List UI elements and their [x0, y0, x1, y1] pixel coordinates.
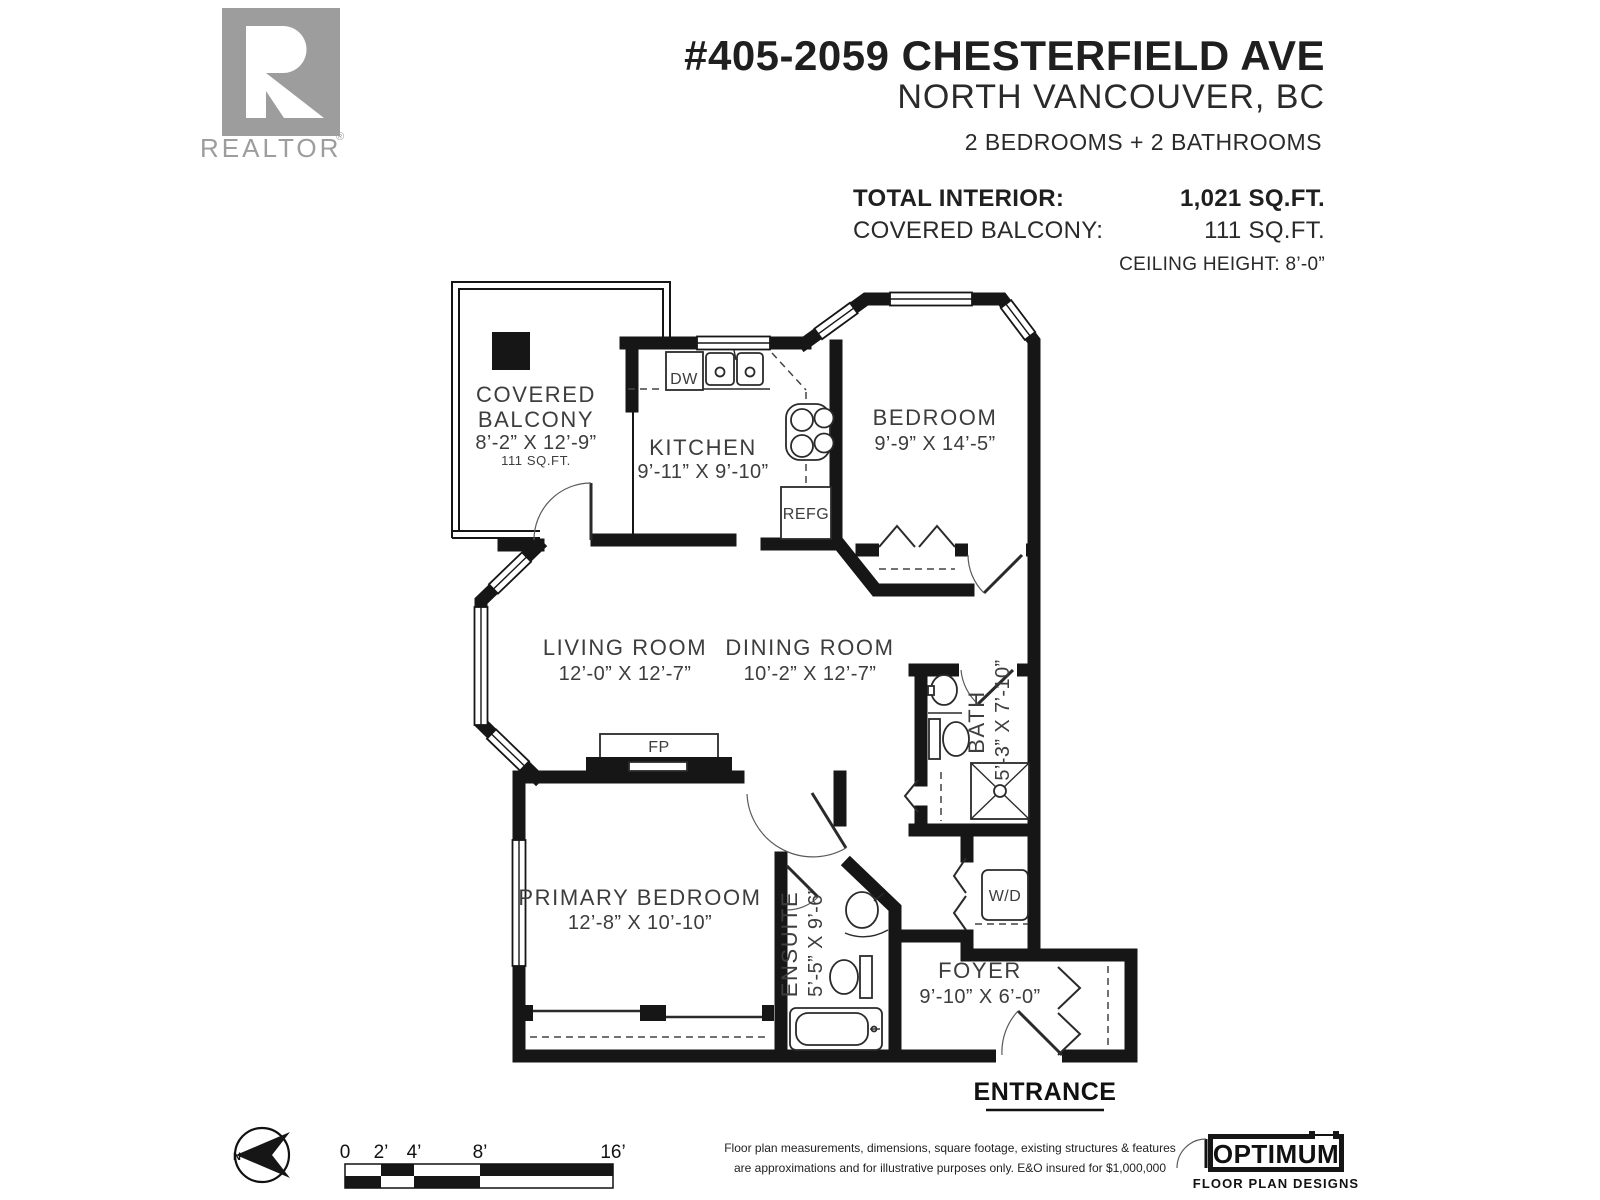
optimum-logo: OPTIMUM FLOOR PLAN DESIGNS [1177, 1131, 1359, 1191]
stat-value-total-interior: 1,021 SQ.FT. [1180, 185, 1325, 212]
disclaimer-line1: Floor plan measurements, dimensions, squ… [724, 1141, 1176, 1155]
disclaimer-line2: are approximations and for illustrative … [734, 1161, 1166, 1175]
living-room-label: LIVING ROOM [543, 635, 707, 660]
living-room-dims: 12’-0” X 12’-7” [559, 663, 692, 685]
kitchen-window [697, 337, 770, 350]
ceiling-height: CEILING HEIGHT: 8’-0” [1119, 254, 1325, 275]
bath-dims: 5’-3” X 7’-10” [992, 659, 1014, 780]
kitchen-sink [703, 350, 770, 389]
floor-plan-canvas: REALTOR ® #405-2059 CHESTERFIELD AVE NOR… [0, 0, 1600, 1200]
scale-bar: 0 2’ 4’ 8’ 16’ [340, 1142, 626, 1188]
disclaimer: Floor plan measurements, dimensions, squ… [724, 1141, 1176, 1175]
bedroom-closet-opening [879, 542, 955, 558]
stat-label-total-interior: TOTAL INTERIOR: [853, 185, 1064, 212]
bedroom-bay-window-left [814, 303, 857, 339]
entrance-callout: ENTRANCE [974, 1078, 1117, 1110]
scale-segment [381, 1164, 414, 1176]
dishwasher-label: DW [670, 371, 698, 388]
foyer-dims: 9’-10” X 6’-0” [919, 986, 1040, 1008]
scale-tick-0: 0 [340, 1142, 351, 1163]
dining-room-dims: 10’-2” X 12’-7” [744, 663, 877, 685]
header: #405-2059 CHESTERFIELD AVE NORTH VANCOUV… [684, 32, 1325, 275]
optimum-window-cap [1309, 1131, 1315, 1139]
dining-room-label: DINING ROOM [725, 635, 894, 660]
living-bay-window-upper [489, 552, 531, 593]
optimum-tagline: FLOOR PLAN DESIGNS [1193, 1176, 1359, 1191]
kitchen-dims: 9’-11” X 9’-10” [637, 461, 768, 483]
north-label: N [233, 1151, 241, 1163]
stove [786, 404, 834, 460]
primary-closet-sliding-doors [521, 1005, 774, 1021]
bath-label: BATH [964, 690, 989, 753]
living-bay-window-center [475, 607, 488, 725]
ensuite-label: ENSUITE [777, 891, 802, 998]
dishwasher: DW [666, 352, 703, 390]
entrance-label: ENTRANCE [974, 1078, 1117, 1106]
scale-segment [345, 1176, 381, 1188]
realtor-logo: REALTOR ® [200, 8, 344, 163]
scale-tick-16: 16’ [600, 1142, 625, 1163]
washer-dryer: W/D [982, 870, 1028, 920]
balcony-label-line2: BALCONY [478, 407, 594, 432]
bathtub [790, 1008, 882, 1050]
entrance-opening [996, 1048, 1062, 1064]
registered-mark-icon: ® [336, 131, 344, 143]
floor-plan: DW REFG FP [452, 282, 1131, 1064]
compass: N [233, 1128, 290, 1182]
kitchen-label: KITCHEN [649, 435, 757, 460]
refrigerator-label: REFG [783, 506, 829, 523]
bath-sink [928, 675, 962, 713]
bedroom-bay-window-right [1001, 300, 1035, 340]
realtor-r-stem [246, 26, 266, 118]
bedroom-label: BEDROOM [873, 405, 998, 430]
balcony-dims: 8’-2” X 12’-9” [475, 432, 596, 454]
north-arrow-icon [236, 1132, 290, 1178]
optimum-window-cap [1333, 1131, 1339, 1139]
stat-label-covered-balcony: COVERED BALCONY: [853, 217, 1103, 244]
foyer-closet-bifold-doors [1058, 967, 1080, 1055]
beds-baths: 2 BEDROOMS + 2 BATHROOMS [965, 129, 1322, 155]
fireplace: FP [586, 734, 732, 778]
scale-tick-8: 8’ [473, 1142, 488, 1163]
scale-tick-2: 2’ [374, 1142, 389, 1163]
balcony-column [492, 332, 530, 370]
primary-bedroom-dims: 12’-8” X 10’-10” [568, 912, 712, 934]
stat-value-covered-balcony: 111 SQ.FT. [1204, 217, 1325, 244]
bath-toilet [929, 719, 969, 759]
scale-segment [414, 1176, 480, 1188]
optimum-door-arc-icon [1177, 1139, 1206, 1168]
living-bay-window-lower [487, 729, 529, 770]
floor-plan-page: REALTOR ® #405-2059 CHESTERFIELD AVE NOR… [0, 0, 1600, 1200]
primary-bedroom-door [747, 793, 846, 857]
optimum-name: OPTIMUM [1213, 1139, 1339, 1169]
bedroom-dims: 9’-9” X 14’-5” [874, 433, 995, 455]
ensuite-toilet [830, 956, 872, 998]
fireplace-label: FP [648, 739, 669, 756]
scale-segment [480, 1164, 613, 1176]
ensuite-dims: 5’-5” X 9’-6” [805, 887, 827, 997]
foyer-label: FOYER [938, 958, 1022, 983]
subtitle-city: NORTH VANCOUVER, BC [897, 78, 1325, 116]
balcony-area: 111 SQ.FT. [501, 453, 571, 468]
balcony-door [534, 483, 591, 540]
washer-dryer-label: W/D [989, 888, 1022, 905]
bedroom-door [968, 555, 1022, 593]
realtor-wordmark: REALTOR [200, 133, 341, 163]
wd-closet-bifold-doors [954, 858, 966, 930]
refrigerator: REFG [781, 487, 831, 539]
primary-bedroom-label: PRIMARY BEDROOM [518, 885, 761, 910]
bedroom-bay-window-center [890, 293, 972, 306]
balcony-label-line1: COVERED [476, 382, 596, 407]
scale-tick-4: 4’ [407, 1142, 422, 1163]
bedroom-door-opening [968, 542, 1026, 558]
page-title: #405-2059 CHESTERFIELD AVE [684, 32, 1325, 79]
